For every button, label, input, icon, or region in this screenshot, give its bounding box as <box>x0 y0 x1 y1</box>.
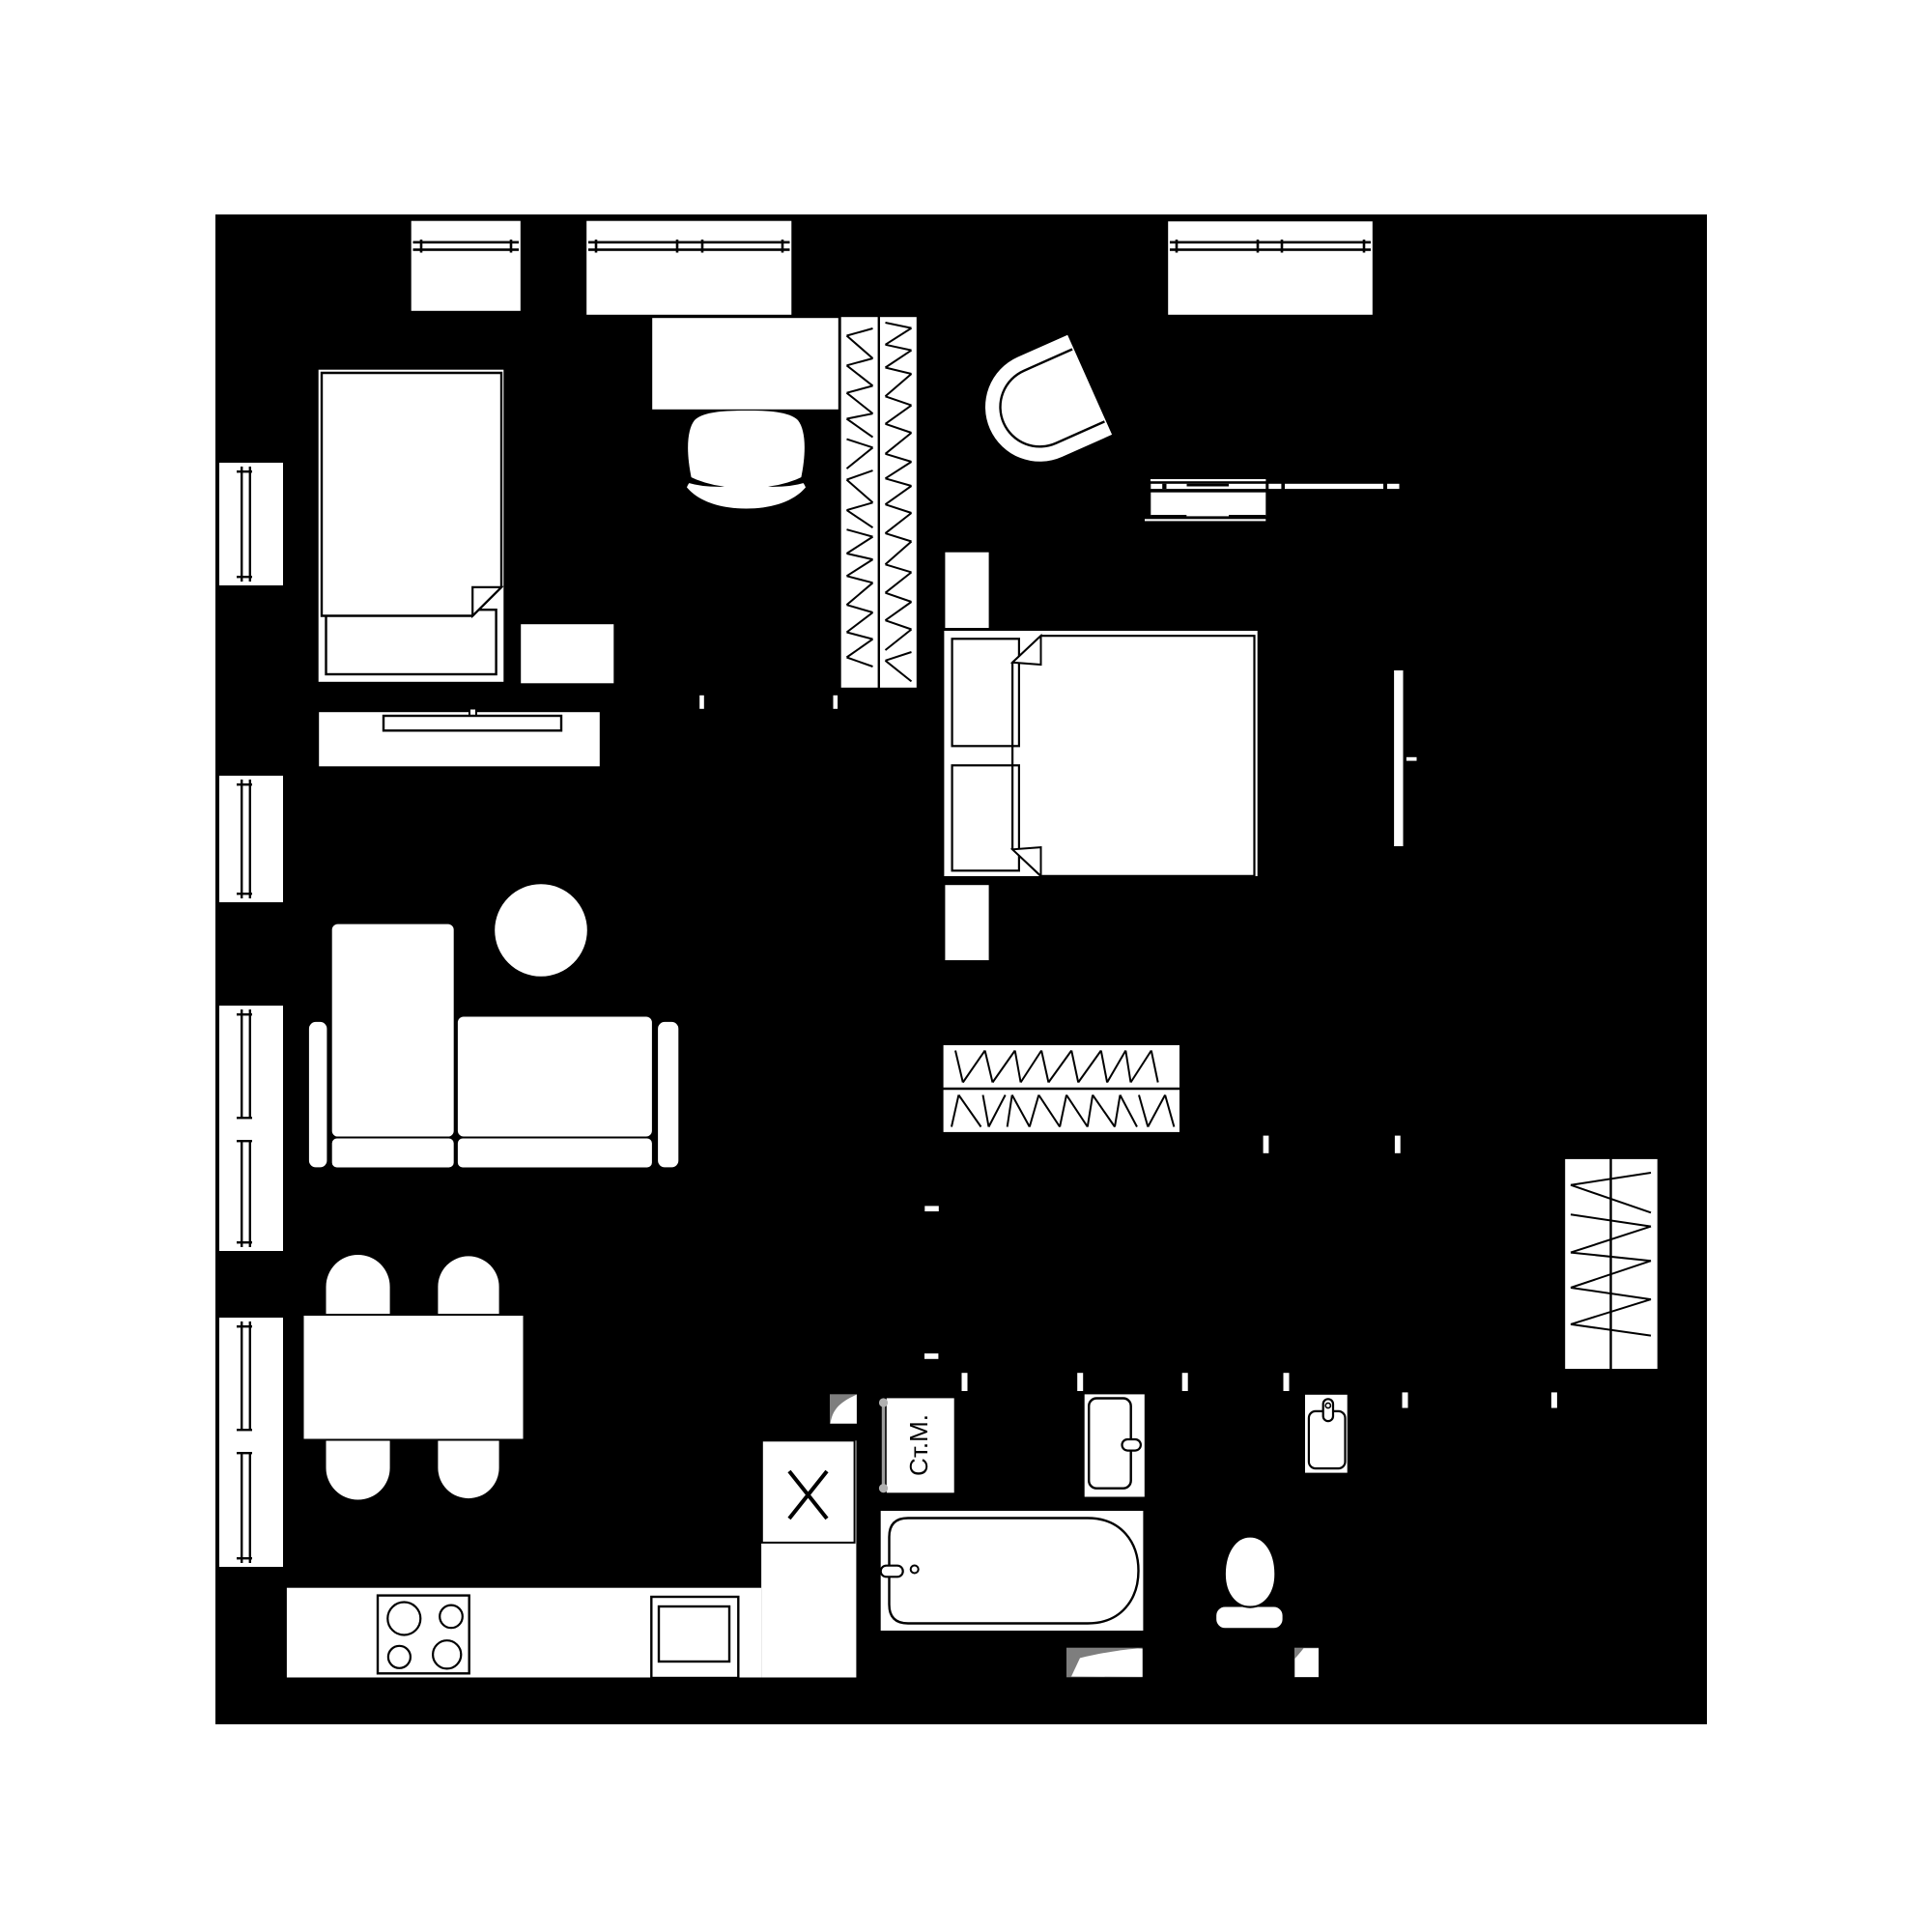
svg-text:Ст.М.: Ст.М. <box>904 1414 933 1476</box>
